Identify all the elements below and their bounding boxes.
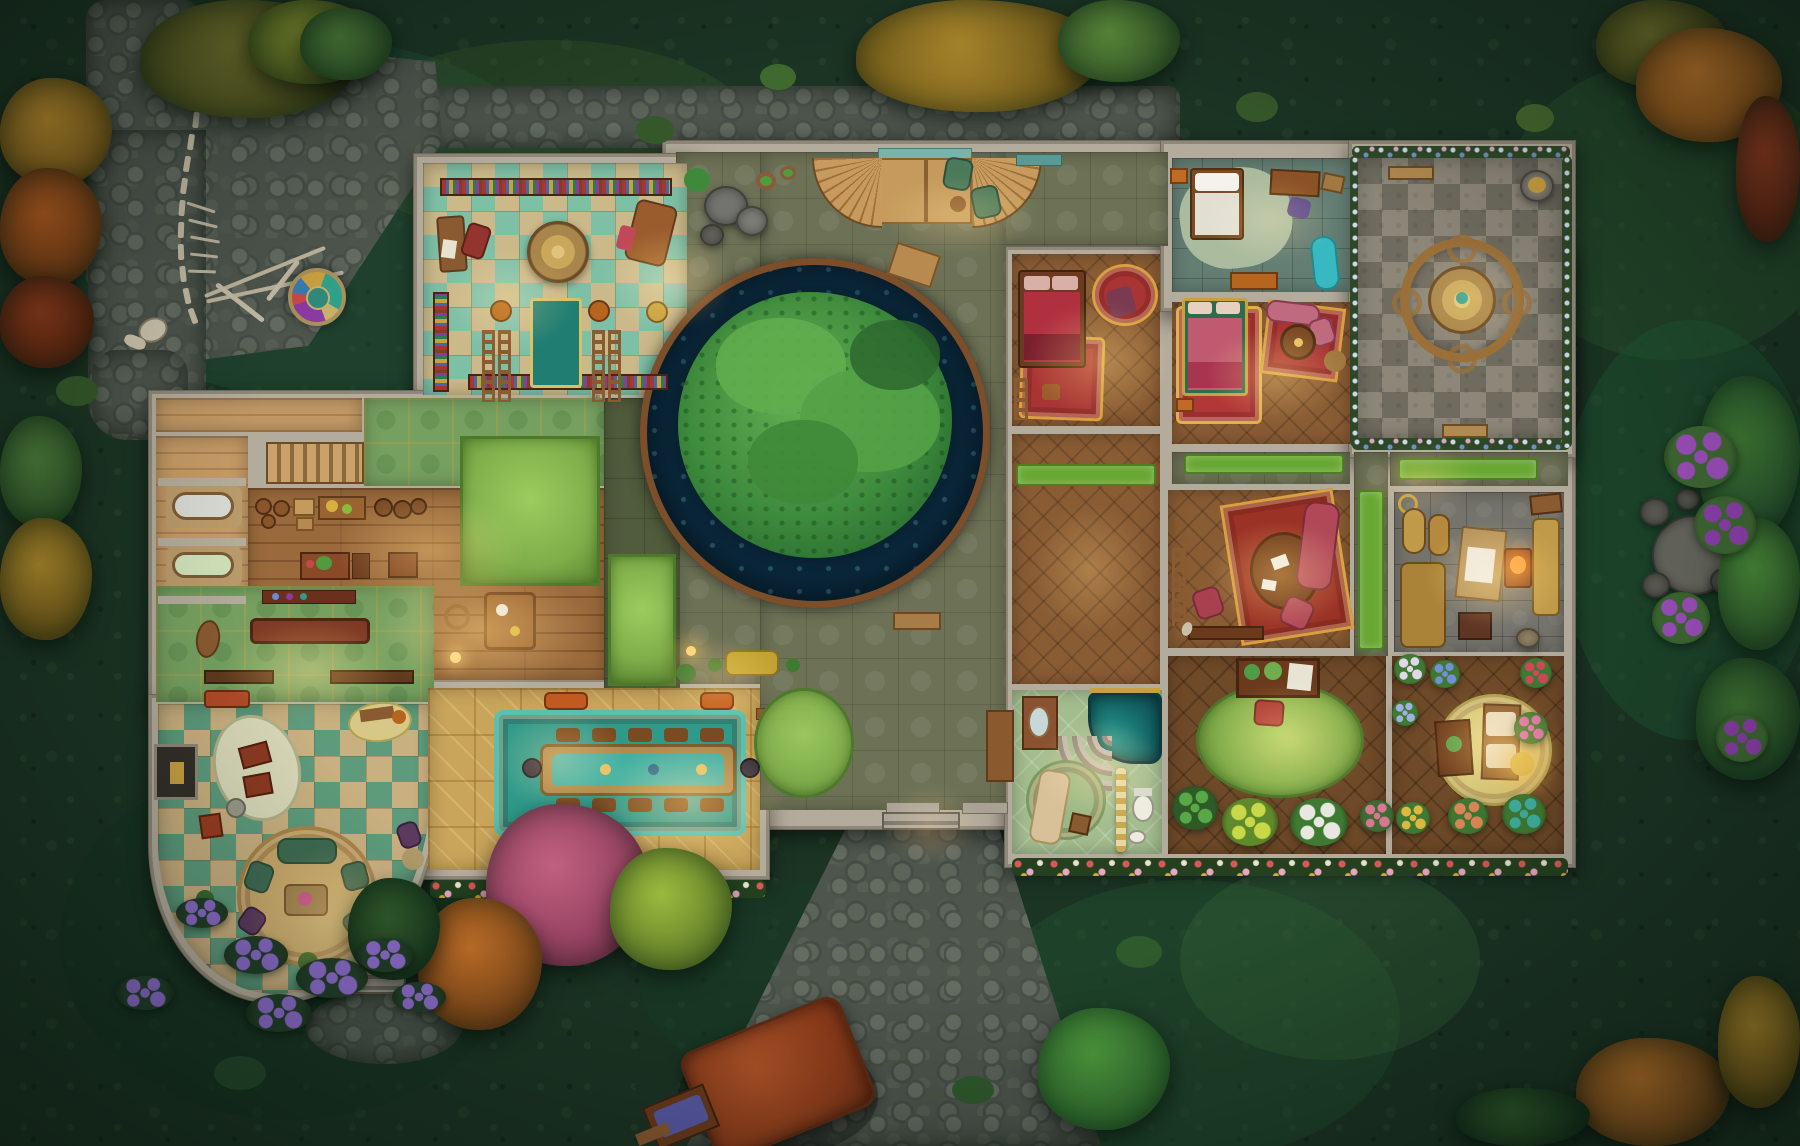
runner-bedroom2-hall [1184, 454, 1344, 474]
wagon-cover [676, 992, 880, 1146]
skeleton-rib [190, 235, 220, 243]
courtyard-oval-lawn-rug [754, 688, 854, 798]
dining-table [540, 744, 736, 796]
skeleton-vertebra [178, 222, 185, 238]
light-conservatory [1180, 660, 1400, 820]
shrub [1116, 936, 1162, 968]
kitchen-keg [261, 514, 276, 529]
bathroom-toilet [1132, 794, 1154, 822]
purple-flower-bush [1652, 592, 1710, 644]
canopy-highlight [716, 318, 846, 414]
bath-mat [166, 486, 242, 528]
lounge-round-rug [237, 826, 377, 966]
grass-patch-s [980, 880, 1400, 1146]
bedroom1-crate [1320, 172, 1345, 194]
flowerbed-dining-south [430, 880, 766, 898]
dining-orange-sofa [544, 692, 588, 710]
library-bookstand [482, 330, 495, 402]
bathroom-sink [1128, 830, 1146, 844]
mosaic-medallion [288, 268, 346, 326]
indoor-lawn-east [608, 554, 676, 686]
skeleton-skull [134, 313, 171, 347]
courtyard-planter-sw [676, 664, 696, 682]
lounge-fireplace [154, 744, 198, 800]
tree-green-e [1696, 658, 1800, 780]
conservatory-desk [1236, 658, 1320, 698]
bathroom-floor [1012, 690, 1162, 854]
bathroom-lounge-chair [1028, 768, 1072, 846]
library-desk-nw [436, 215, 468, 273]
bath-divider-wall [158, 596, 246, 604]
dining-floor [428, 688, 760, 870]
tree-green-w [0, 416, 82, 528]
canopy-shadow-blob [850, 320, 940, 390]
lounge-flower-vase [298, 892, 312, 906]
library-bookshelf-left [433, 292, 449, 392]
lounge-plant [298, 952, 318, 972]
bedroom1-floor [1172, 158, 1350, 292]
tree-pink [486, 804, 648, 966]
bathroom-toilet-tank [1134, 788, 1152, 796]
patio-planter [1520, 170, 1554, 202]
kitchen-lamp [450, 652, 461, 663]
workshop-floor [1394, 492, 1564, 652]
tavern-bar-counter [250, 618, 370, 644]
garden-room-rug [1436, 694, 1552, 806]
patio-planter-bloom [1528, 177, 1546, 193]
courtyard-planter-top [783, 169, 793, 177]
garden-room-pot [1448, 798, 1488, 834]
lounge-orange-stool [392, 710, 406, 724]
patio-bench [1442, 424, 1488, 438]
bedroom2-pink-sofa [1265, 299, 1321, 327]
light-library-west [420, 230, 600, 370]
library-desk-ne [623, 198, 679, 268]
conservatory-pot [1222, 798, 1278, 846]
bedroom2-floor [1172, 302, 1350, 444]
bedroom-crimson-floor [1012, 254, 1160, 426]
courtyard-floor-west [676, 152, 776, 684]
pond-root-ring [640, 258, 990, 608]
conservatory-chair [1253, 699, 1285, 727]
lavender-bush [246, 994, 312, 1032]
light-bathroom [1010, 700, 1190, 840]
parlor-cat [1180, 621, 1194, 638]
tree-golden [0, 78, 112, 186]
courtyard-long-table [986, 710, 1014, 782]
cobble-path-south [640, 808, 1110, 1146]
courtyard-floor-east [760, 152, 1006, 810]
dining-chair [628, 798, 652, 812]
tree-darkgreen-se [1456, 1088, 1590, 1146]
bedroom1-dresser [1230, 272, 1278, 290]
conservatory-desk-plant [1264, 662, 1282, 680]
hedge-patio-top [1352, 146, 1570, 158]
lavender-bush [392, 982, 446, 1012]
dining-chair [628, 728, 652, 742]
dining-chair [664, 728, 688, 742]
skeleton-vertebra [182, 288, 191, 305]
hedge-patio-right [1562, 156, 1572, 448]
bedroom1-chaise-cyan [1309, 235, 1341, 291]
lounge-green-couch [277, 838, 337, 864]
kitchen-big-table [484, 592, 536, 650]
skeleton-rib [188, 270, 216, 274]
mosaic-medallion-center [306, 286, 330, 310]
grass-patch-sw-dark [60, 760, 520, 1120]
canopy-highlight [748, 420, 858, 504]
parlor-bench [1188, 626, 1264, 640]
pantry-floor [364, 398, 604, 486]
patio-walls [1348, 140, 1576, 458]
courtyard-pot [708, 658, 722, 672]
grand-stairs-fan-right [972, 158, 1042, 228]
tree-darkred-ne [1736, 96, 1800, 242]
workshop-brass-tank [1428, 514, 1450, 556]
grass-patch-e-bright [1560, 320, 1800, 740]
parlor-rug [1220, 488, 1355, 646]
tree-golden-w [0, 518, 92, 640]
bedroom2-round-table [1280, 324, 1316, 360]
courtyard-side-table [950, 196, 966, 212]
library-bookshelf-bottom [468, 374, 668, 390]
wagon-yoke [635, 1122, 671, 1146]
workshop-machine [1532, 518, 1560, 616]
dining-chair [700, 728, 724, 742]
light-workshop [1400, 500, 1590, 650]
dining-urn [740, 758, 760, 778]
bedroom1-chest [1170, 168, 1188, 184]
tree-green-e [1698, 376, 1800, 540]
light-garden-room [1400, 670, 1590, 820]
kitchen-keg [273, 500, 290, 517]
courtyard-boulder [704, 186, 748, 226]
tree-orange [0, 168, 102, 286]
dining-chair [556, 798, 580, 812]
bedroomC-duvet [1024, 292, 1080, 362]
workshop-worktable [1454, 526, 1507, 602]
grand-stairs-lintel [878, 148, 972, 160]
skeleton-vertebra [178, 244, 185, 260]
kitchen-floor [248, 488, 604, 680]
conservatory-floor [1168, 656, 1386, 854]
wagon-driver-bench [642, 1083, 720, 1146]
battle-map [0, 0, 1800, 1146]
lounge-purple-chair [235, 903, 270, 938]
library-pink-chair [615, 224, 636, 251]
dining-chair [664, 798, 688, 812]
shrub [760, 64, 796, 90]
tavern-bench [330, 670, 414, 684]
corridor-vertical-floor [1354, 452, 1388, 656]
skeleton-vertebra [178, 200, 185, 216]
cobble-path-left-join [92, 350, 188, 434]
bedroomC-round-rug [1092, 264, 1158, 326]
kitchen-food-dots [342, 504, 352, 514]
patio-bench [1388, 166, 1434, 180]
courtyard-planter [756, 172, 776, 190]
kitchen-plate [496, 604, 508, 616]
bedroom1-chair-purple [1286, 196, 1312, 221]
light-parlor [1180, 500, 1380, 650]
vignette [0, 0, 1800, 1146]
lounge-green-armchair [339, 859, 371, 893]
library-stool [588, 300, 610, 322]
garden-room-pot [1514, 712, 1548, 744]
lounge-coffee-table [284, 884, 328, 916]
grass-patch-se [1180, 860, 1480, 1060]
tree-mossy [248, 0, 376, 84]
lounge-wicker-chair [402, 848, 424, 870]
garden-alley-floor [604, 398, 680, 704]
tavern-boat-table [193, 619, 222, 660]
skeleton-vertebra [179, 266, 187, 283]
bedroomC-stool [1042, 384, 1060, 400]
lounge-side-table [238, 740, 273, 769]
garden-room-table-plant [1446, 736, 1462, 752]
shrub [1516, 104, 1554, 132]
parlor-red-armchair [1190, 584, 1226, 621]
library-floor [423, 163, 687, 395]
workshop-gauge [1398, 494, 1418, 514]
hedge-patio-bottom [1352, 438, 1570, 450]
lavender-bush [356, 938, 414, 972]
lounge-red-table [198, 813, 223, 840]
shrub [636, 116, 674, 144]
kitchen-plate [510, 626, 520, 636]
skeleton-vertebra [187, 307, 198, 324]
kitchen-crate [293, 498, 315, 516]
kitchen-prep-spice [306, 560, 314, 568]
light-courtyard-sw [640, 620, 800, 740]
pond-tree-canopy [678, 292, 952, 558]
light-grand-stairs [850, 160, 1070, 270]
skeleton-rib [186, 201, 215, 213]
entry-corridor-floor [156, 398, 362, 432]
conservatory-desk-plant [1244, 664, 1260, 680]
grand-stairs-fan-left [812, 158, 882, 228]
bedroom-block-walls [1160, 140, 1356, 312]
tree-olive-ne [1596, 0, 1728, 88]
conservatory-pot [1172, 786, 1218, 830]
patio-ornament-gem [1456, 292, 1468, 304]
tavern-bottles [286, 593, 293, 600]
courtyard-wall-shelf [756, 708, 810, 720]
entrance-steps [882, 812, 960, 830]
tavern-bottles [300, 593, 307, 600]
purple-flower-bush [1664, 426, 1738, 488]
dining-hall-walls [418, 678, 770, 880]
courtyard-rail [886, 802, 940, 814]
kitchen-crate [296, 517, 314, 531]
courtyard-floor-north [676, 152, 1168, 246]
courtyard-bush [684, 168, 710, 192]
lounge-fireplace-grate [170, 762, 184, 784]
west-wing-walls [148, 390, 610, 708]
grass-patch-top-moss [340, 40, 760, 240]
skeleton-vertebra [180, 178, 188, 195]
courtyard-pot [786, 658, 800, 672]
tavern-bench [204, 670, 274, 684]
lounge-side-table [242, 772, 273, 799]
bathroom-mirror [1028, 706, 1050, 738]
parlor-papers [1270, 554, 1289, 571]
bath-divider-wall [158, 478, 246, 486]
courtyard-rail [962, 802, 1008, 814]
light-dining-west [470, 690, 650, 830]
library-bookstand [592, 330, 605, 402]
pond-bench [893, 612, 941, 630]
workshop-scrap-pile [1516, 628, 1540, 648]
courtyard-armchair [941, 156, 974, 192]
parlor-floor [1168, 490, 1350, 648]
hedge-patio-left [1350, 156, 1358, 446]
dining-orange-sofa [700, 692, 734, 710]
stone-turtle-head [1676, 488, 1700, 510]
bedroomC-bed-frame [1018, 270, 1086, 368]
bedroom2-bed-frame [1182, 298, 1248, 396]
workshop-boiler [1400, 562, 1446, 648]
cobble-path-left [88, 130, 206, 440]
skeleton-leg-bone [266, 259, 301, 301]
lavender-bush [224, 936, 288, 974]
lavender-bush [116, 976, 174, 1010]
dining-table-medallion [696, 764, 707, 775]
light-bedroom2 [1180, 310, 1370, 440]
light-gate [860, 770, 1000, 880]
tree-bright-green-s [1038, 1008, 1170, 1130]
kitchen-food-dots [326, 500, 338, 512]
dining-urn [522, 758, 542, 778]
bedroom2-pink-chair [1306, 315, 1337, 349]
tavern-bottles [272, 593, 279, 600]
tree-green [1058, 0, 1180, 82]
kitchen-barrel [374, 498, 393, 517]
bedroom2-pillow [1188, 302, 1212, 314]
light-dining [560, 720, 820, 880]
library-globe [646, 301, 668, 323]
courtyard-teal-bench [1016, 154, 1062, 166]
garden-room-pot [1502, 794, 1546, 834]
dining-chair [700, 798, 724, 812]
dining-teal-rug [494, 710, 746, 836]
bathroom-pool-rail [1090, 688, 1160, 693]
corridor-horizontal-floor [1390, 452, 1568, 486]
light-bedroomC [1000, 280, 1200, 440]
library-medallion-table [527, 221, 589, 283]
courtyard-planter-top [760, 176, 772, 186]
library-walls [413, 153, 697, 405]
wagon-cushion [653, 1094, 710, 1139]
bedroom2-rug [1176, 306, 1262, 424]
patio-swirl [1447, 234, 1477, 264]
bedroom2-pillow [1216, 302, 1240, 314]
patio-ornament-ring [1400, 238, 1524, 362]
runner-hall-east [1016, 464, 1156, 486]
bathroom-divider-screen [1116, 768, 1126, 852]
bedroom2-duvet [1188, 318, 1242, 390]
lounge-yellow-rug [346, 699, 414, 745]
workshop-desk [1529, 492, 1563, 515]
patio-swirl [1447, 344, 1477, 374]
lounge-purple-chair-e [394, 819, 424, 851]
dining-table-medallion [648, 764, 659, 775]
cobble-clearing-skeleton [78, 42, 450, 372]
kitchen-herb-shelf [352, 553, 370, 579]
pond-dock [887, 242, 941, 289]
lavender-bush [176, 898, 228, 928]
bedroom1-duvet [1195, 193, 1239, 235]
tree-golden-large [856, 0, 1102, 112]
cobble-path-top [148, 86, 1180, 148]
garden-room-pot [1520, 658, 1552, 688]
courtyard-armchair [969, 183, 1003, 220]
light-lounge [210, 820, 470, 1020]
library-stool [490, 300, 512, 322]
cobble-patch-lounge-exit [306, 990, 462, 1064]
tavern-red-table [204, 690, 250, 708]
conservatory-desk-cloth [1287, 663, 1314, 691]
workshop-crate [1458, 612, 1492, 640]
hall-bedroom2-floor [1172, 452, 1350, 484]
flowerbed-east-south [1012, 858, 1568, 876]
dining-chair [556, 728, 580, 742]
skeleton-wing-bone [206, 270, 344, 303]
light-library-east [580, 210, 760, 350]
dining-chair [592, 798, 616, 812]
tree-orange-ne [1636, 28, 1782, 142]
tree-olive [140, 0, 360, 118]
workshop-brass-tank [1402, 508, 1426, 554]
grand-stairs-divider [924, 160, 928, 222]
stone-turtle-flipper [1640, 498, 1670, 526]
tree-green-small [300, 8, 392, 80]
grand-stairs-platform [880, 158, 972, 224]
lounge-green-armchair [242, 858, 277, 895]
canopy-highlight [800, 368, 940, 472]
skeleton-wing-bone [204, 246, 326, 298]
lounge-oval-rug [199, 703, 314, 832]
tree-orange-s [418, 898, 542, 1030]
garden-room-pot [1392, 700, 1418, 726]
stone-turtle-flipper [1712, 502, 1742, 530]
garden-room-floor [1392, 656, 1564, 854]
conservatory-pot [1360, 800, 1394, 832]
lavender-bush [296, 958, 368, 998]
library-red-chair [459, 221, 492, 261]
parlor-papers [1261, 579, 1277, 591]
patio-ornament-disc [1428, 266, 1496, 334]
garden-room-daybed [1481, 703, 1522, 780]
light-bedroom1 [1180, 160, 1360, 280]
tree-green-e [1718, 518, 1800, 650]
courtyard-boulder [736, 206, 768, 236]
light-tavern [190, 600, 430, 740]
shrub [56, 376, 98, 406]
lounge-bench [359, 706, 394, 723]
garden-alley-walls [596, 390, 688, 712]
kitchen-keg [255, 498, 272, 515]
library-desk-papers [441, 239, 457, 259]
skeleton-vertebra [183, 156, 191, 173]
stone-turtle-shell [1652, 515, 1736, 595]
bathroom-stool [1068, 812, 1092, 836]
bathroom-pool [1088, 692, 1162, 764]
garden-room-cushion [1486, 744, 1516, 768]
runner-corridor-vertical [1358, 490, 1384, 650]
workshop-furnace [1504, 548, 1532, 588]
workshop-furnace-fire [1510, 556, 1526, 574]
